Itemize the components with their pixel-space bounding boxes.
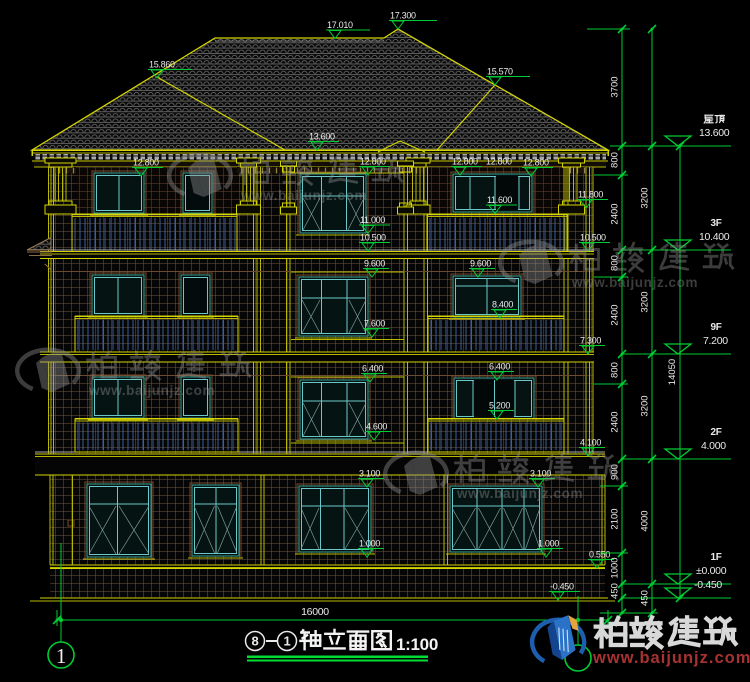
svg-text:9.600: 9.600 <box>470 259 491 269</box>
svg-text:-0.450: -0.450 <box>694 579 722 591</box>
svg-text:10.500: 10.500 <box>580 233 606 243</box>
svg-text:16000: 16000 <box>301 606 329 618</box>
svg-text:3.100: 3.100 <box>359 469 380 479</box>
svg-text:2400: 2400 <box>610 304 621 325</box>
svg-text:11.600: 11.600 <box>487 195 512 205</box>
svg-text:0.550: 0.550 <box>589 550 610 560</box>
svg-text:1.000: 1.000 <box>359 539 380 549</box>
svg-text:7.600: 7.600 <box>364 319 385 329</box>
svg-text:13.600: 13.600 <box>309 132 335 142</box>
svg-text:3700: 3700 <box>610 76 621 97</box>
svg-text:4.000: 4.000 <box>701 440 726 452</box>
svg-text:800: 800 <box>610 152 621 168</box>
svg-text:7.200: 7.200 <box>703 335 728 347</box>
svg-text:4000: 4000 <box>640 510 651 531</box>
svg-text:1: 1 <box>284 634 291 649</box>
svg-text:11.000: 11.000 <box>360 215 385 225</box>
svg-text:2100: 2100 <box>610 508 621 529</box>
svg-text:www.baijunjz.com: www.baijunjz.com <box>456 486 583 501</box>
svg-text:14050: 14050 <box>667 359 678 385</box>
svg-text:8.400: 8.400 <box>492 300 513 310</box>
svg-text:3200: 3200 <box>640 291 651 312</box>
svg-text:www.baijunjz.com: www.baijunjz.com <box>592 649 750 667</box>
svg-text:6.400: 6.400 <box>489 362 510 372</box>
svg-text:1.000: 1.000 <box>538 539 559 549</box>
svg-text:12.800: 12.800 <box>523 158 549 168</box>
svg-text:13.600: 13.600 <box>699 127 730 139</box>
svg-text:11.800: 11.800 <box>578 190 603 200</box>
svg-text:10.500: 10.500 <box>360 233 386 243</box>
svg-text:17.010: 17.010 <box>327 20 353 30</box>
svg-text:3200: 3200 <box>640 187 651 208</box>
svg-text:2400: 2400 <box>610 411 621 432</box>
svg-text:www.baijunjz.com: www.baijunjz.com <box>88 383 215 398</box>
svg-text:5.200: 5.200 <box>489 401 510 411</box>
svg-text:4.100: 4.100 <box>580 438 601 448</box>
svg-text:12.800: 12.800 <box>486 157 512 167</box>
svg-text:12.800: 12.800 <box>452 157 478 167</box>
svg-text:450: 450 <box>640 590 651 606</box>
svg-text:3200: 3200 <box>640 395 651 416</box>
svg-text:8: 8 <box>252 634 259 649</box>
svg-text:1F: 1F <box>710 552 721 563</box>
svg-text:2400: 2400 <box>610 203 621 224</box>
svg-text:17.300: 17.300 <box>390 11 416 21</box>
svg-text:2F: 2F <box>710 427 721 438</box>
svg-text:10.400: 10.400 <box>699 231 730 243</box>
svg-text:12.800: 12.800 <box>133 158 159 168</box>
svg-text:6.400: 6.400 <box>362 364 383 374</box>
svg-text:450: 450 <box>610 583 621 599</box>
svg-text:800: 800 <box>610 362 621 378</box>
svg-text:7.300: 7.300 <box>580 336 601 346</box>
svg-text:9F: 9F <box>710 322 721 333</box>
svg-text:-0.450: -0.450 <box>550 582 574 592</box>
svg-text:3F: 3F <box>710 218 721 229</box>
svg-text:9.600: 9.600 <box>364 259 385 269</box>
svg-text:1000: 1000 <box>610 557 621 578</box>
svg-text:15.860: 15.860 <box>149 60 175 70</box>
svg-text:www.baijunjz.com: www.baijunjz.com <box>240 188 367 203</box>
svg-text:±0.000: ±0.000 <box>696 565 727 577</box>
svg-text:1:100: 1:100 <box>396 635 438 654</box>
svg-text:www.baijunjz.com: www.baijunjz.com <box>571 275 698 290</box>
svg-text:15.570: 15.570 <box>487 67 513 77</box>
svg-text:4.600: 4.600 <box>366 422 387 432</box>
svg-text:1: 1 <box>56 644 66 668</box>
